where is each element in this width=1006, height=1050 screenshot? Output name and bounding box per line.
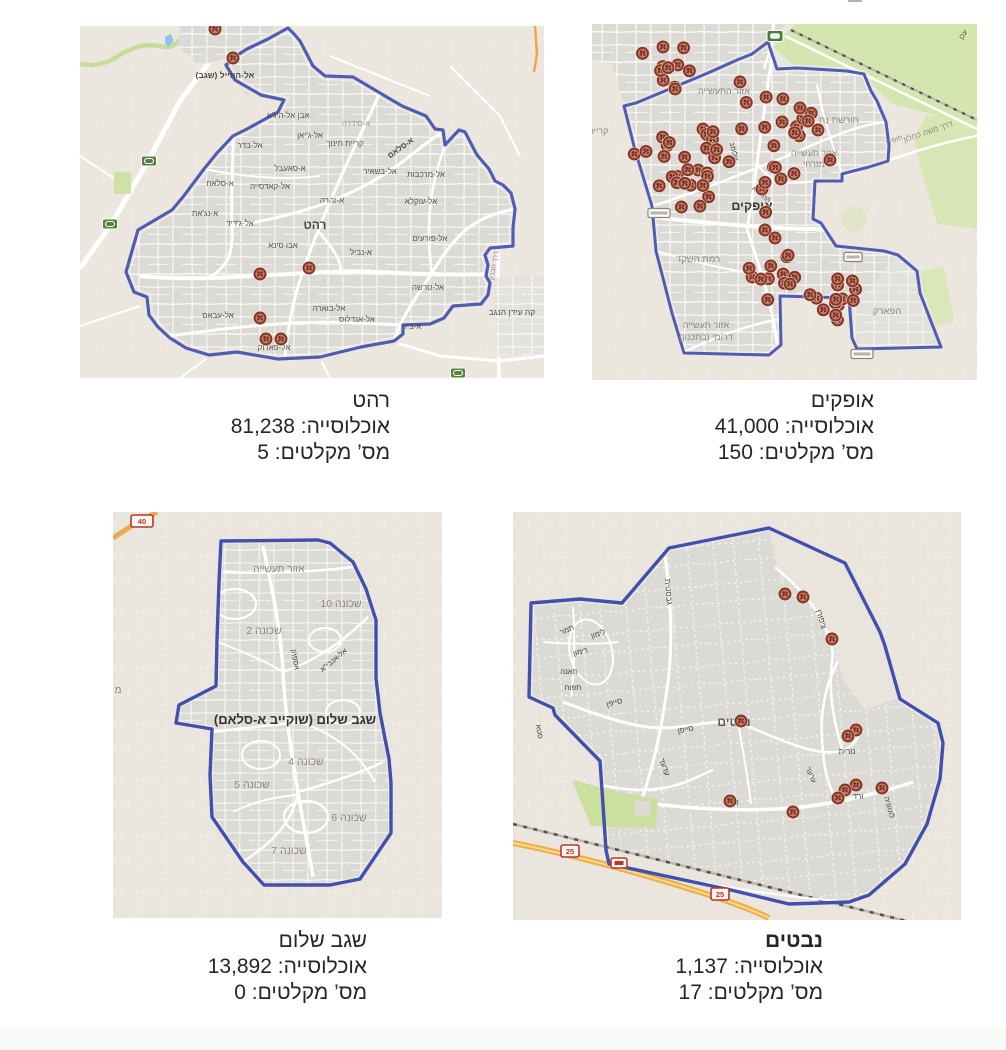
svg-text:קריית: קריית xyxy=(592,126,608,136)
svg-text:קה עידן הנגב: קה עידן הנגב xyxy=(489,307,536,317)
svg-text:תאנה: תאנה xyxy=(560,667,578,676)
svg-text:א-ביר: א-ביר xyxy=(403,322,422,331)
svg-text:נורית: נורית xyxy=(839,747,856,756)
svg-text:אל-בשאיר: אל-בשאיר xyxy=(363,167,397,176)
svg-text:קריית חינוך: קריית חינוך xyxy=(326,139,364,148)
svg-text:4 שכונה: 4 שכונה xyxy=(288,756,324,768)
svg-text:אל-מרכבות: אל-מרכבות xyxy=(407,170,445,179)
svg-text:שכונה 6: שכונה 6 xyxy=(331,812,367,824)
svg-text:אל-קאדסייה: אל-קאדסייה xyxy=(250,182,290,191)
svg-text:אל-בדר: אל-בדר xyxy=(237,141,262,150)
svg-text:2 שכונה: 2 שכונה xyxy=(246,625,282,637)
svg-text:א-סלאח: א-סלאח xyxy=(206,179,233,188)
svg-text:מזרחי: מזרחי xyxy=(803,159,825,169)
svg-text:שגב שלום (שוקייב א-סלאם): שגב שלום (שוקייב א-סלאם) xyxy=(214,712,376,727)
svg-text:רהט: רהט xyxy=(304,218,327,232)
svg-text:25: 25 xyxy=(716,890,724,899)
svg-text:אל-בוארה: אל-בוארה xyxy=(313,304,346,313)
svg-text:שכונה 10: שכונה 10 xyxy=(320,598,362,610)
svg-text:מ: מ xyxy=(115,685,122,696)
svg-text:ורד: ורד xyxy=(853,792,864,801)
svg-text:אזור תעשייה: אזור תעשייה xyxy=(253,564,305,575)
svg-text:25: 25 xyxy=(566,847,574,856)
svg-text:א-נביל: א-נביל xyxy=(350,248,372,257)
svg-text:5 שכונה: 5 שכונה xyxy=(234,779,270,791)
svg-text:אבו סינא: אבו סינא xyxy=(268,241,298,250)
svg-text:א-סידרה: א-סידרה xyxy=(342,119,371,128)
svg-text:אל-אנדלוס: אל-אנדלוס xyxy=(339,315,375,324)
svg-text:דרומי (בתכנון): דרומי (בתכנון) xyxy=(679,332,733,342)
svg-text:א-נג'את: א-נג'את xyxy=(192,209,218,218)
svg-text:הפארק: הפארק xyxy=(873,306,901,317)
svg-text:א-סאעבל: א-סאעבל xyxy=(274,164,305,173)
svg-text:7 שכונה: 7 שכונה xyxy=(271,845,307,857)
svg-text:אל-ג'יאן: אל-ג'יאן xyxy=(297,131,323,140)
svg-text:אל-עוקלא: אל-עוקלא xyxy=(405,197,437,206)
svg-text:40: 40 xyxy=(138,517,146,526)
svg-text:אל-פורעים: אל-פורעים xyxy=(413,234,448,243)
svg-text:אל-טרשה: אל-טרשה xyxy=(412,283,444,292)
svg-text:א-זהרה: א-זהרה xyxy=(320,196,344,205)
svg-text:חורשת נח: חורשת נח xyxy=(819,115,859,126)
svg-text:אזור תעשייה: אזור תעשייה xyxy=(683,320,730,330)
svg-text:אל-ג'דיד: אל-ג'דיד xyxy=(226,219,254,228)
svg-text:תפוח: תפוח xyxy=(565,683,582,692)
svg-text:אל-הוזייל (שגב): אל-הוזייל (שגב) xyxy=(196,70,255,80)
svg-text:אל-עבאס: אל-עבאס xyxy=(202,311,233,320)
svg-text:רמת השקד: רמת השקד xyxy=(676,254,720,265)
svg-text:אבן אל-היג'א: אבן אל-היג'א xyxy=(267,111,310,120)
